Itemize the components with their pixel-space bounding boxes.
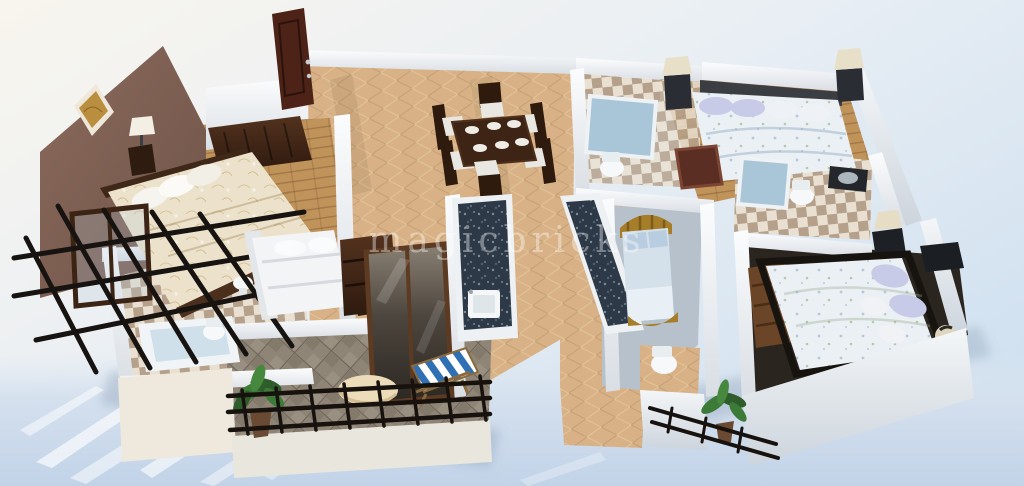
floor-plan-render: magicbricks [0, 0, 1024, 486]
pillow [648, 230, 668, 248]
corridor-floor-lower [560, 385, 645, 448]
place-setting [465, 126, 479, 134]
balcony-left-end-wall [118, 368, 236, 462]
nightstand-lamp-right [834, 48, 864, 102]
pillow [798, 104, 830, 122]
pillow [731, 99, 765, 117]
sofa [244, 230, 350, 320]
pillow [766, 101, 798, 119]
dining-chair [478, 82, 504, 118]
nightstand-lamp-left [662, 56, 692, 110]
place-setting [515, 138, 529, 146]
bathtub [738, 158, 790, 208]
place-setting [487, 122, 501, 130]
pillow [699, 97, 733, 115]
place-setting [495, 141, 509, 149]
kitchen-counter-left [452, 194, 518, 342]
rug [676, 146, 722, 188]
floor-plan-screenshot: magicbricks [0, 0, 1024, 486]
watermark-text: magicbricks [368, 220, 646, 261]
place-setting [507, 120, 521, 128]
place-setting [473, 144, 487, 152]
vanity-basin [828, 166, 868, 192]
bathtub [586, 96, 656, 158]
bed-sheet [627, 286, 674, 322]
